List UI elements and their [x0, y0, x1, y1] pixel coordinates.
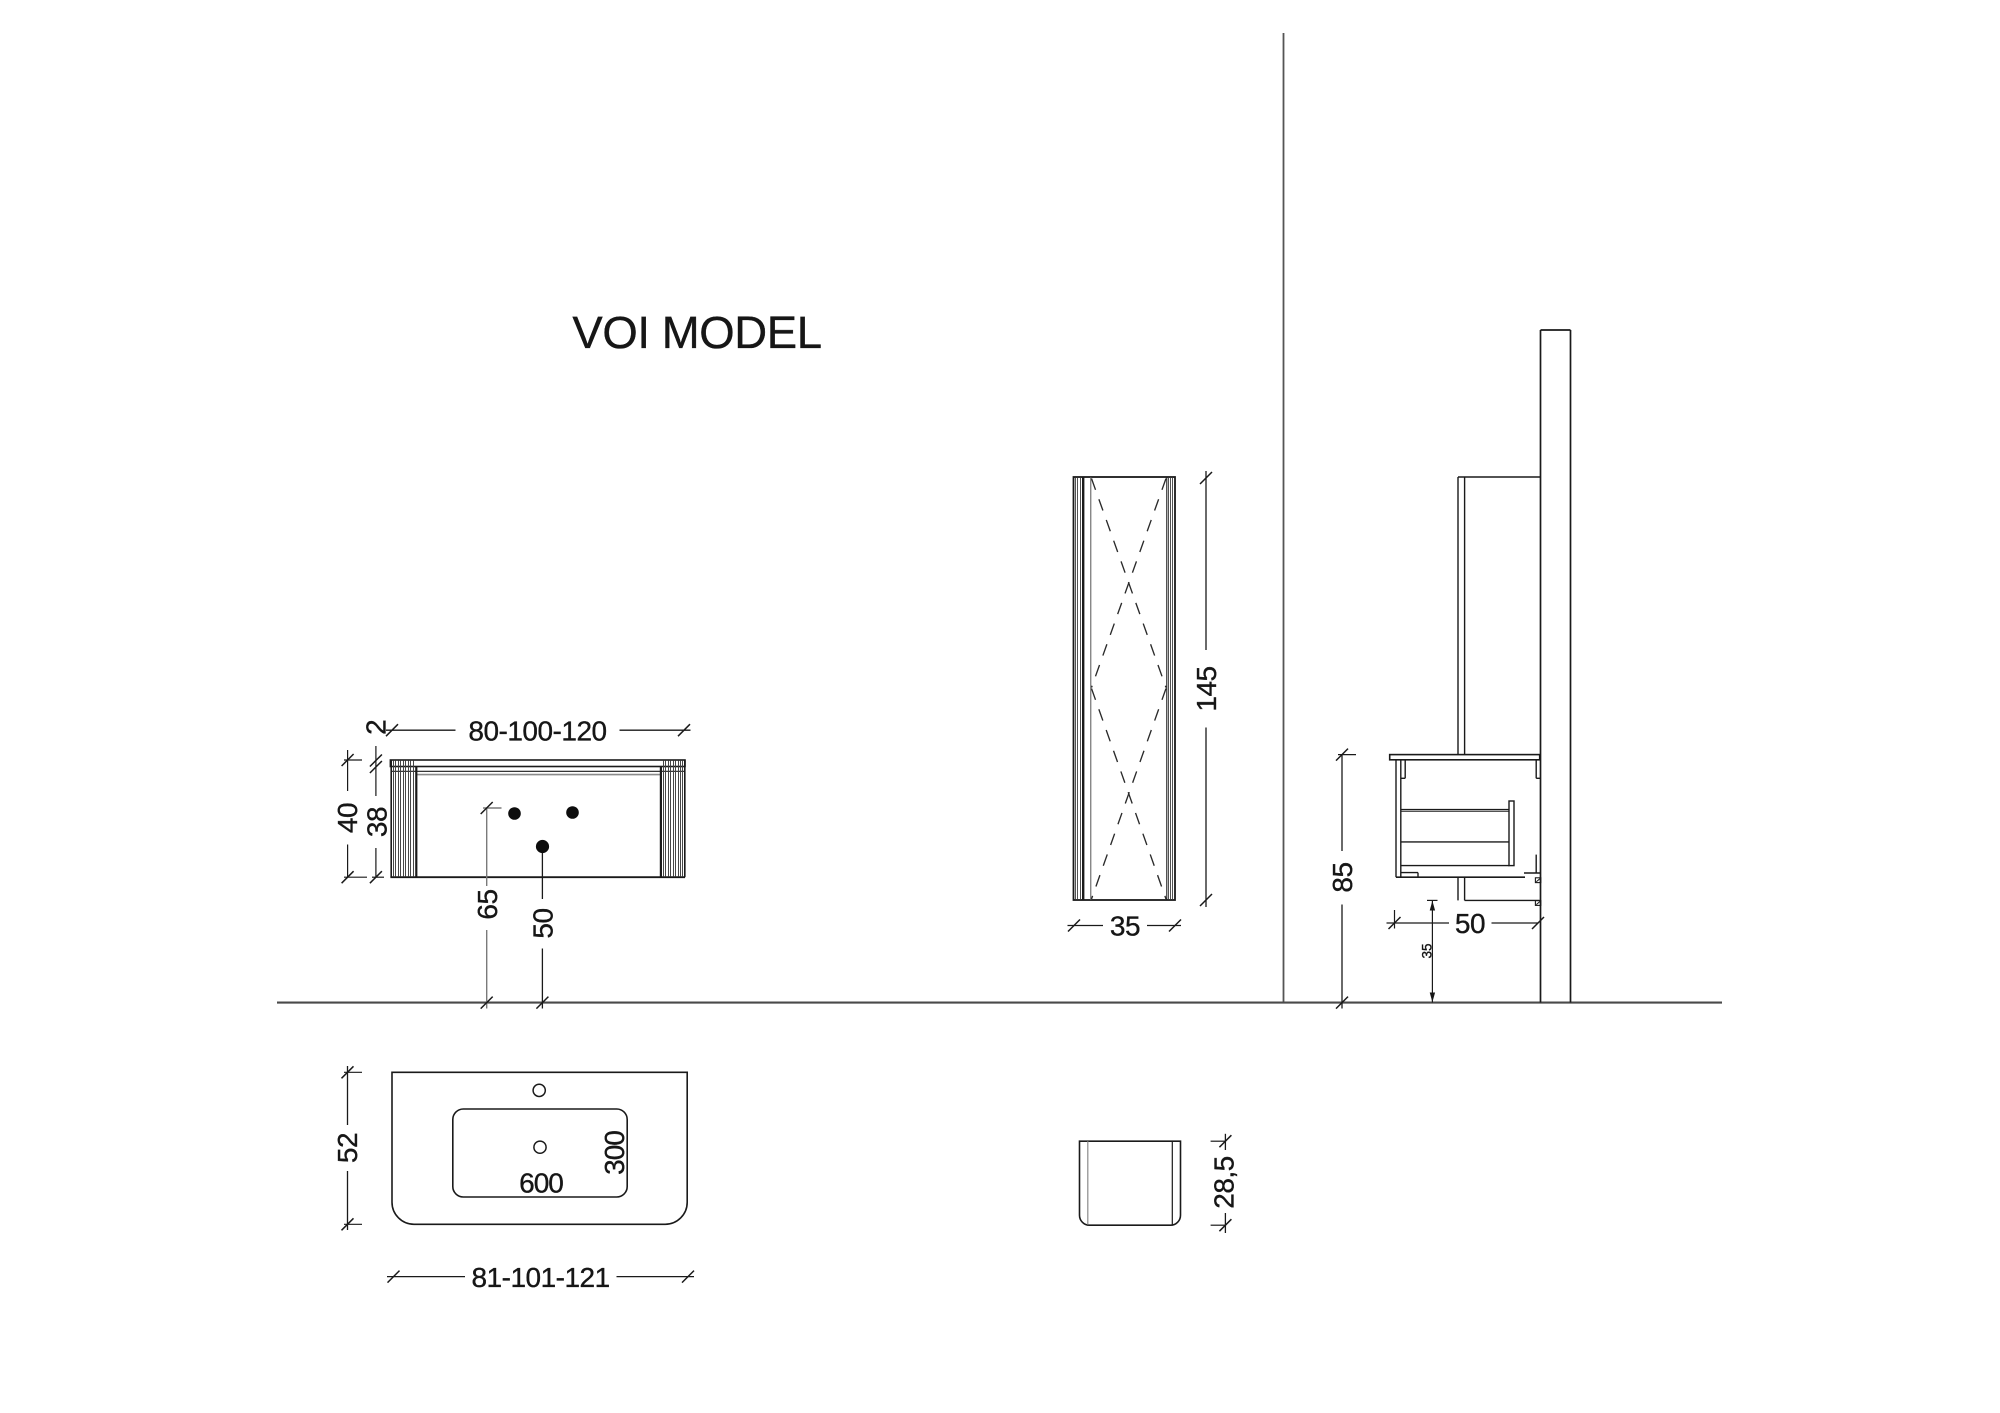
svg-text:35: 35	[1110, 911, 1140, 942]
svg-text:VOI MODEL: VOI MODEL	[572, 307, 821, 358]
svg-text:28,5: 28,5	[1209, 1156, 1240, 1209]
svg-text:2: 2	[361, 720, 392, 735]
svg-text:35: 35	[1420, 943, 1435, 958]
svg-text:145: 145	[1191, 666, 1222, 711]
svg-text:80-100-120: 80-100-120	[468, 715, 606, 746]
svg-text:300: 300	[599, 1131, 630, 1175]
svg-text:85: 85	[1327, 862, 1358, 892]
svg-text:81-101-121: 81-101-121	[471, 1262, 609, 1293]
svg-text:65: 65	[472, 889, 503, 919]
svg-text:38: 38	[361, 807, 392, 837]
svg-text:52: 52	[332, 1133, 363, 1163]
svg-text:50: 50	[1455, 908, 1485, 939]
svg-text:40: 40	[332, 803, 363, 833]
svg-text:50: 50	[528, 908, 559, 938]
svg-text:600: 600	[519, 1168, 563, 1199]
